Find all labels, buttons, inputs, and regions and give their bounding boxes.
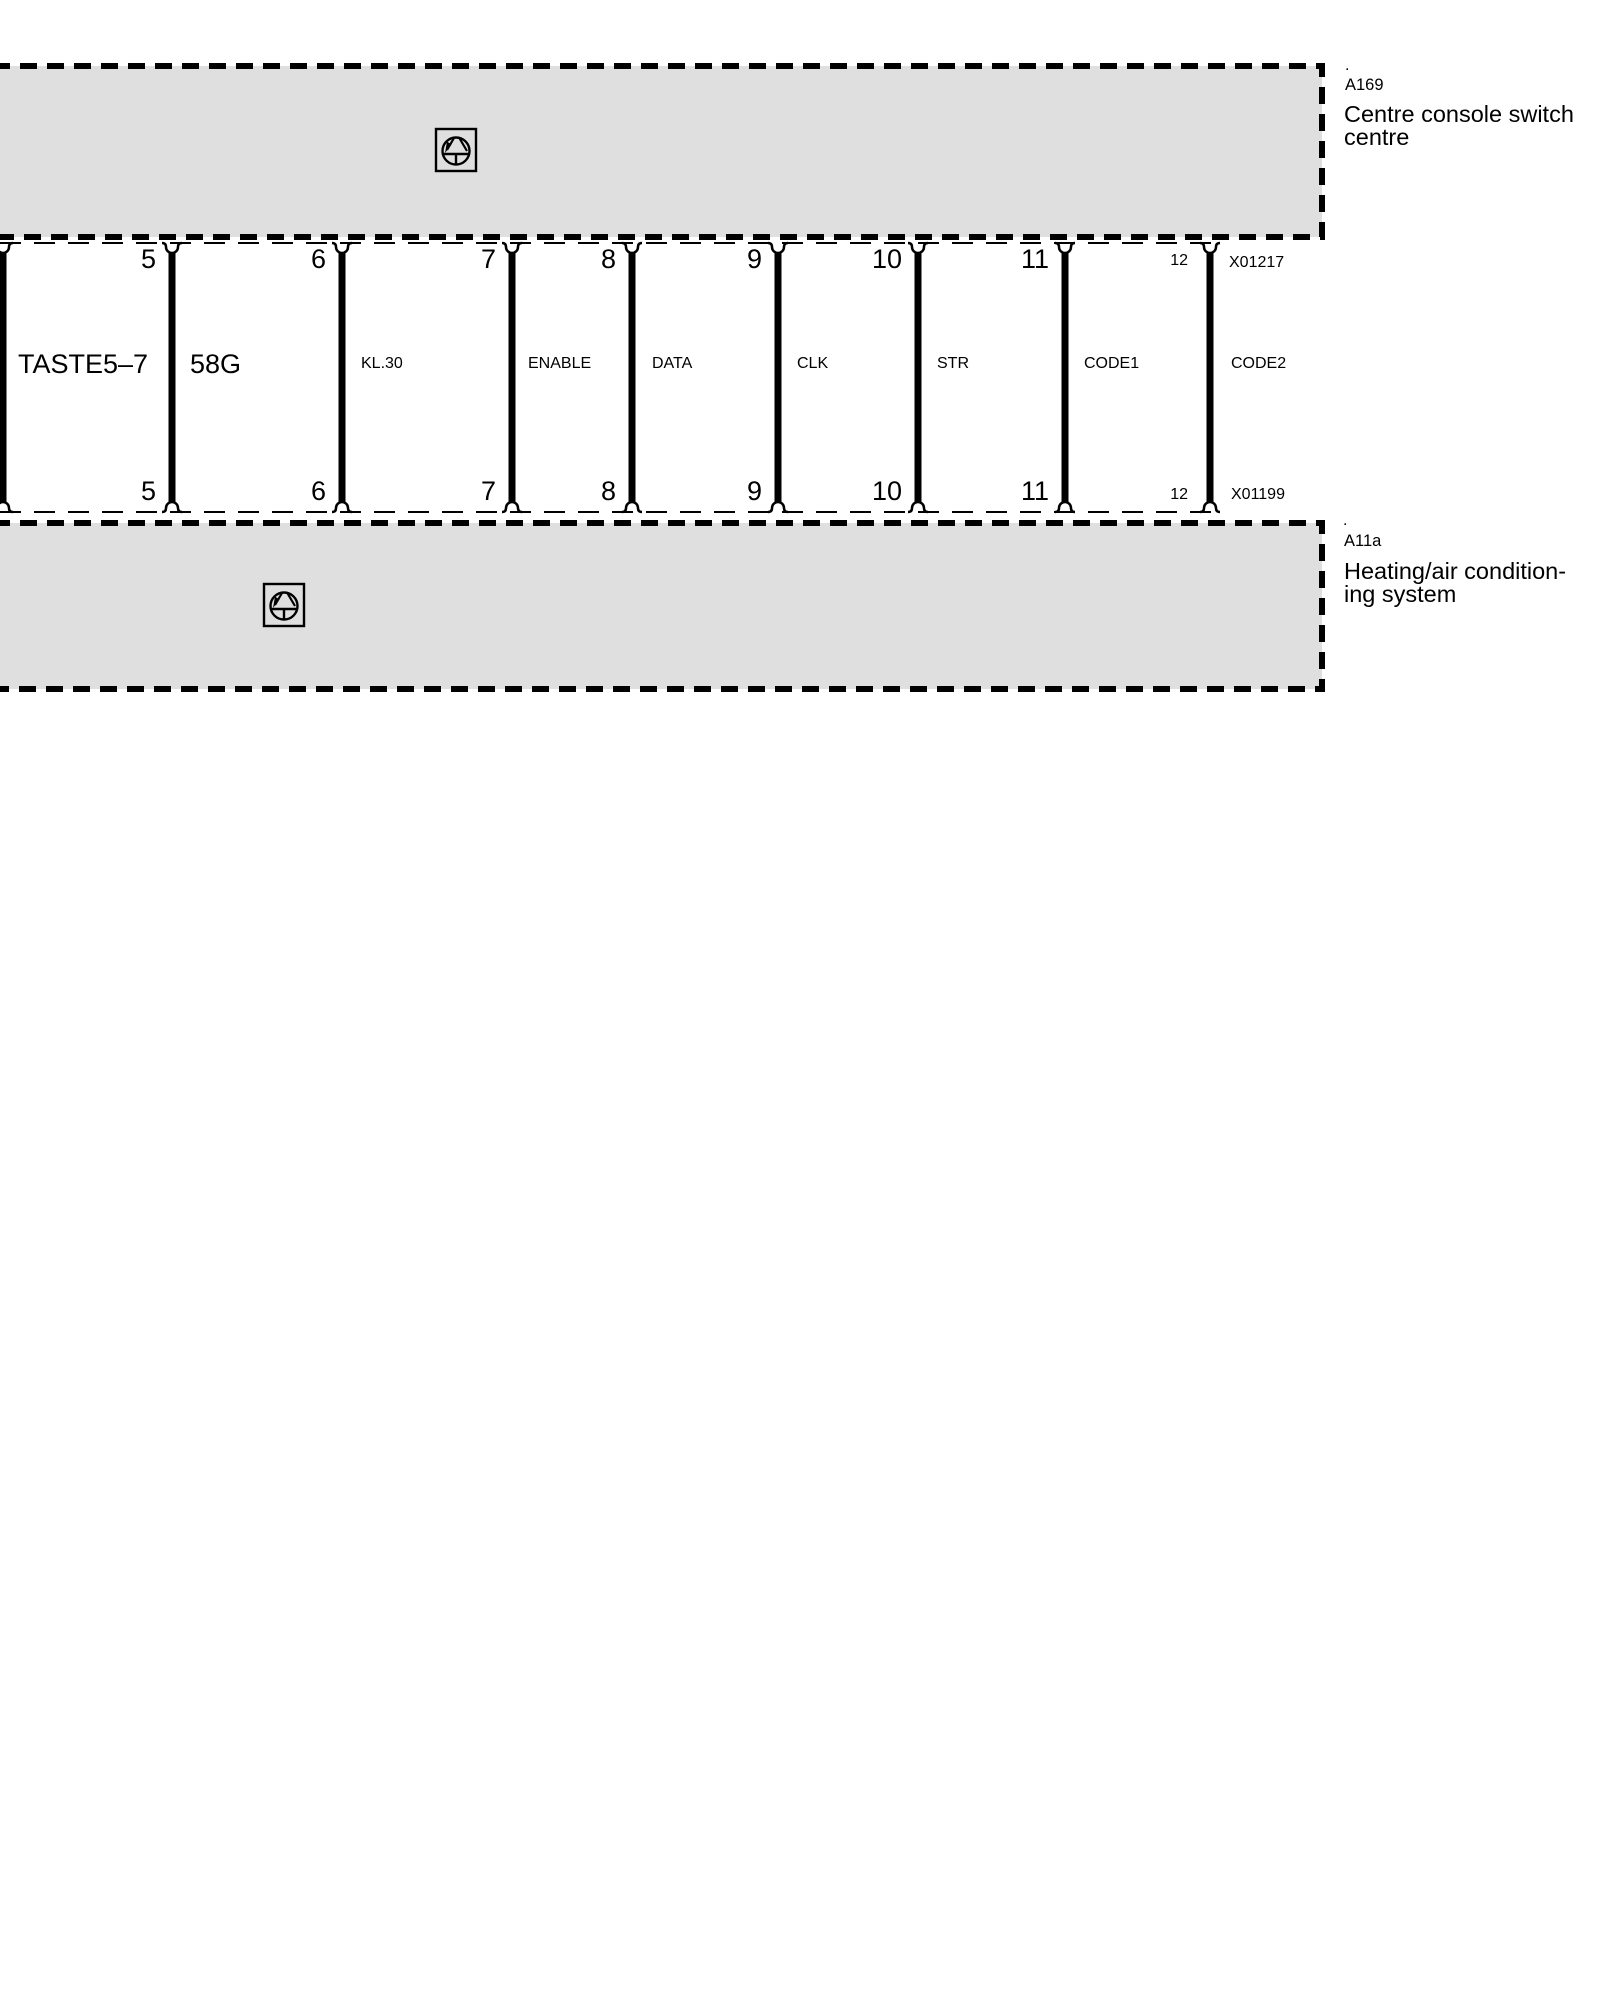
component-block-top (0, 66, 1322, 237)
signal-label: CODE1 (1084, 356, 1139, 372)
connector-socket-icon (332, 502, 352, 512)
pin-number-bottom: 12 (1108, 487, 1188, 503)
pin-number-bottom: 5 (72, 478, 156, 505)
pin-number-top: 6 (242, 246, 326, 273)
pin-number-bottom: 7 (412, 478, 496, 505)
ref-dot-bottom: . (1343, 513, 1347, 529)
connector-label-top: X01217 (1229, 255, 1284, 271)
pin-number-top: 7 (412, 246, 496, 273)
pin-number-top: 11 (965, 246, 1049, 273)
block-title-bottom-line2: ing system (1344, 583, 1566, 606)
signal-label: DATA (652, 356, 692, 372)
connector-socket-icon (332, 243, 352, 253)
block-title-bottom: Heating/air condition-ing system (1344, 560, 1566, 606)
pin-number-top: 10 (818, 246, 902, 273)
connector-label-bottom: X01199 (1231, 487, 1285, 503)
signal-label: TASTE5–7 (18, 351, 148, 378)
pin-number-bottom: 10 (818, 478, 902, 505)
connector-socket-icon (768, 243, 788, 253)
block-title-bottom-line1: Heating/air condition- (1344, 560, 1566, 583)
connector-socket-icon (0, 502, 13, 512)
connector-socket-icon (908, 502, 928, 512)
pin-number-bottom: 9 (678, 478, 762, 505)
connector-socket-icon (622, 502, 642, 512)
block-title-top-line2: centre (1344, 126, 1574, 149)
wire-lines (3, 252, 1210, 503)
signal-label: CLK (797, 356, 828, 372)
connector-socket-icon (1055, 243, 1075, 253)
pin-number-top: 5 (72, 246, 156, 273)
connector-socket-icon (1200, 243, 1220, 253)
block-title-top: Centre console switchcentre (1344, 103, 1574, 149)
signal-label: STR (937, 356, 969, 372)
connector-socket-icon (162, 243, 182, 253)
pin-number-bottom: 6 (242, 478, 326, 505)
connector-socket-icon (502, 502, 522, 512)
connector-socket-icon (908, 243, 928, 253)
block-title-top-line1: Centre console switch (1344, 103, 1574, 126)
connector-socket-icon (0, 243, 13, 253)
signal-label: ENABLE (528, 356, 591, 372)
block-ref-code-top: A169 (1345, 77, 1384, 94)
connector-socket-icon (622, 243, 642, 253)
connector-socket-icon (1200, 502, 1220, 512)
signal-label: 58G (190, 351, 241, 378)
signal-label: CODE2 (1231, 356, 1286, 372)
pin-number-bottom: 8 (532, 478, 616, 505)
component-block-bottom (0, 523, 1322, 689)
pin-number-top: 9 (678, 246, 762, 273)
pin-number-bottom: 11 (965, 478, 1049, 505)
wiring-diagram-canvas: . A169 Centre console switchcentre . A11… (0, 0, 1600, 2000)
connector-socket-icon (502, 243, 522, 253)
connector-socket-icon (162, 502, 182, 512)
pin-number-top: 12 (1108, 253, 1188, 269)
block-ref-code-bottom: A11a (1344, 533, 1381, 550)
ref-dot-top: . (1345, 58, 1349, 74)
signal-label: KL.30 (361, 356, 403, 372)
connector-socket-icon (768, 502, 788, 512)
connector-socket-icon (1055, 502, 1075, 512)
pin-number-top: 8 (532, 246, 616, 273)
